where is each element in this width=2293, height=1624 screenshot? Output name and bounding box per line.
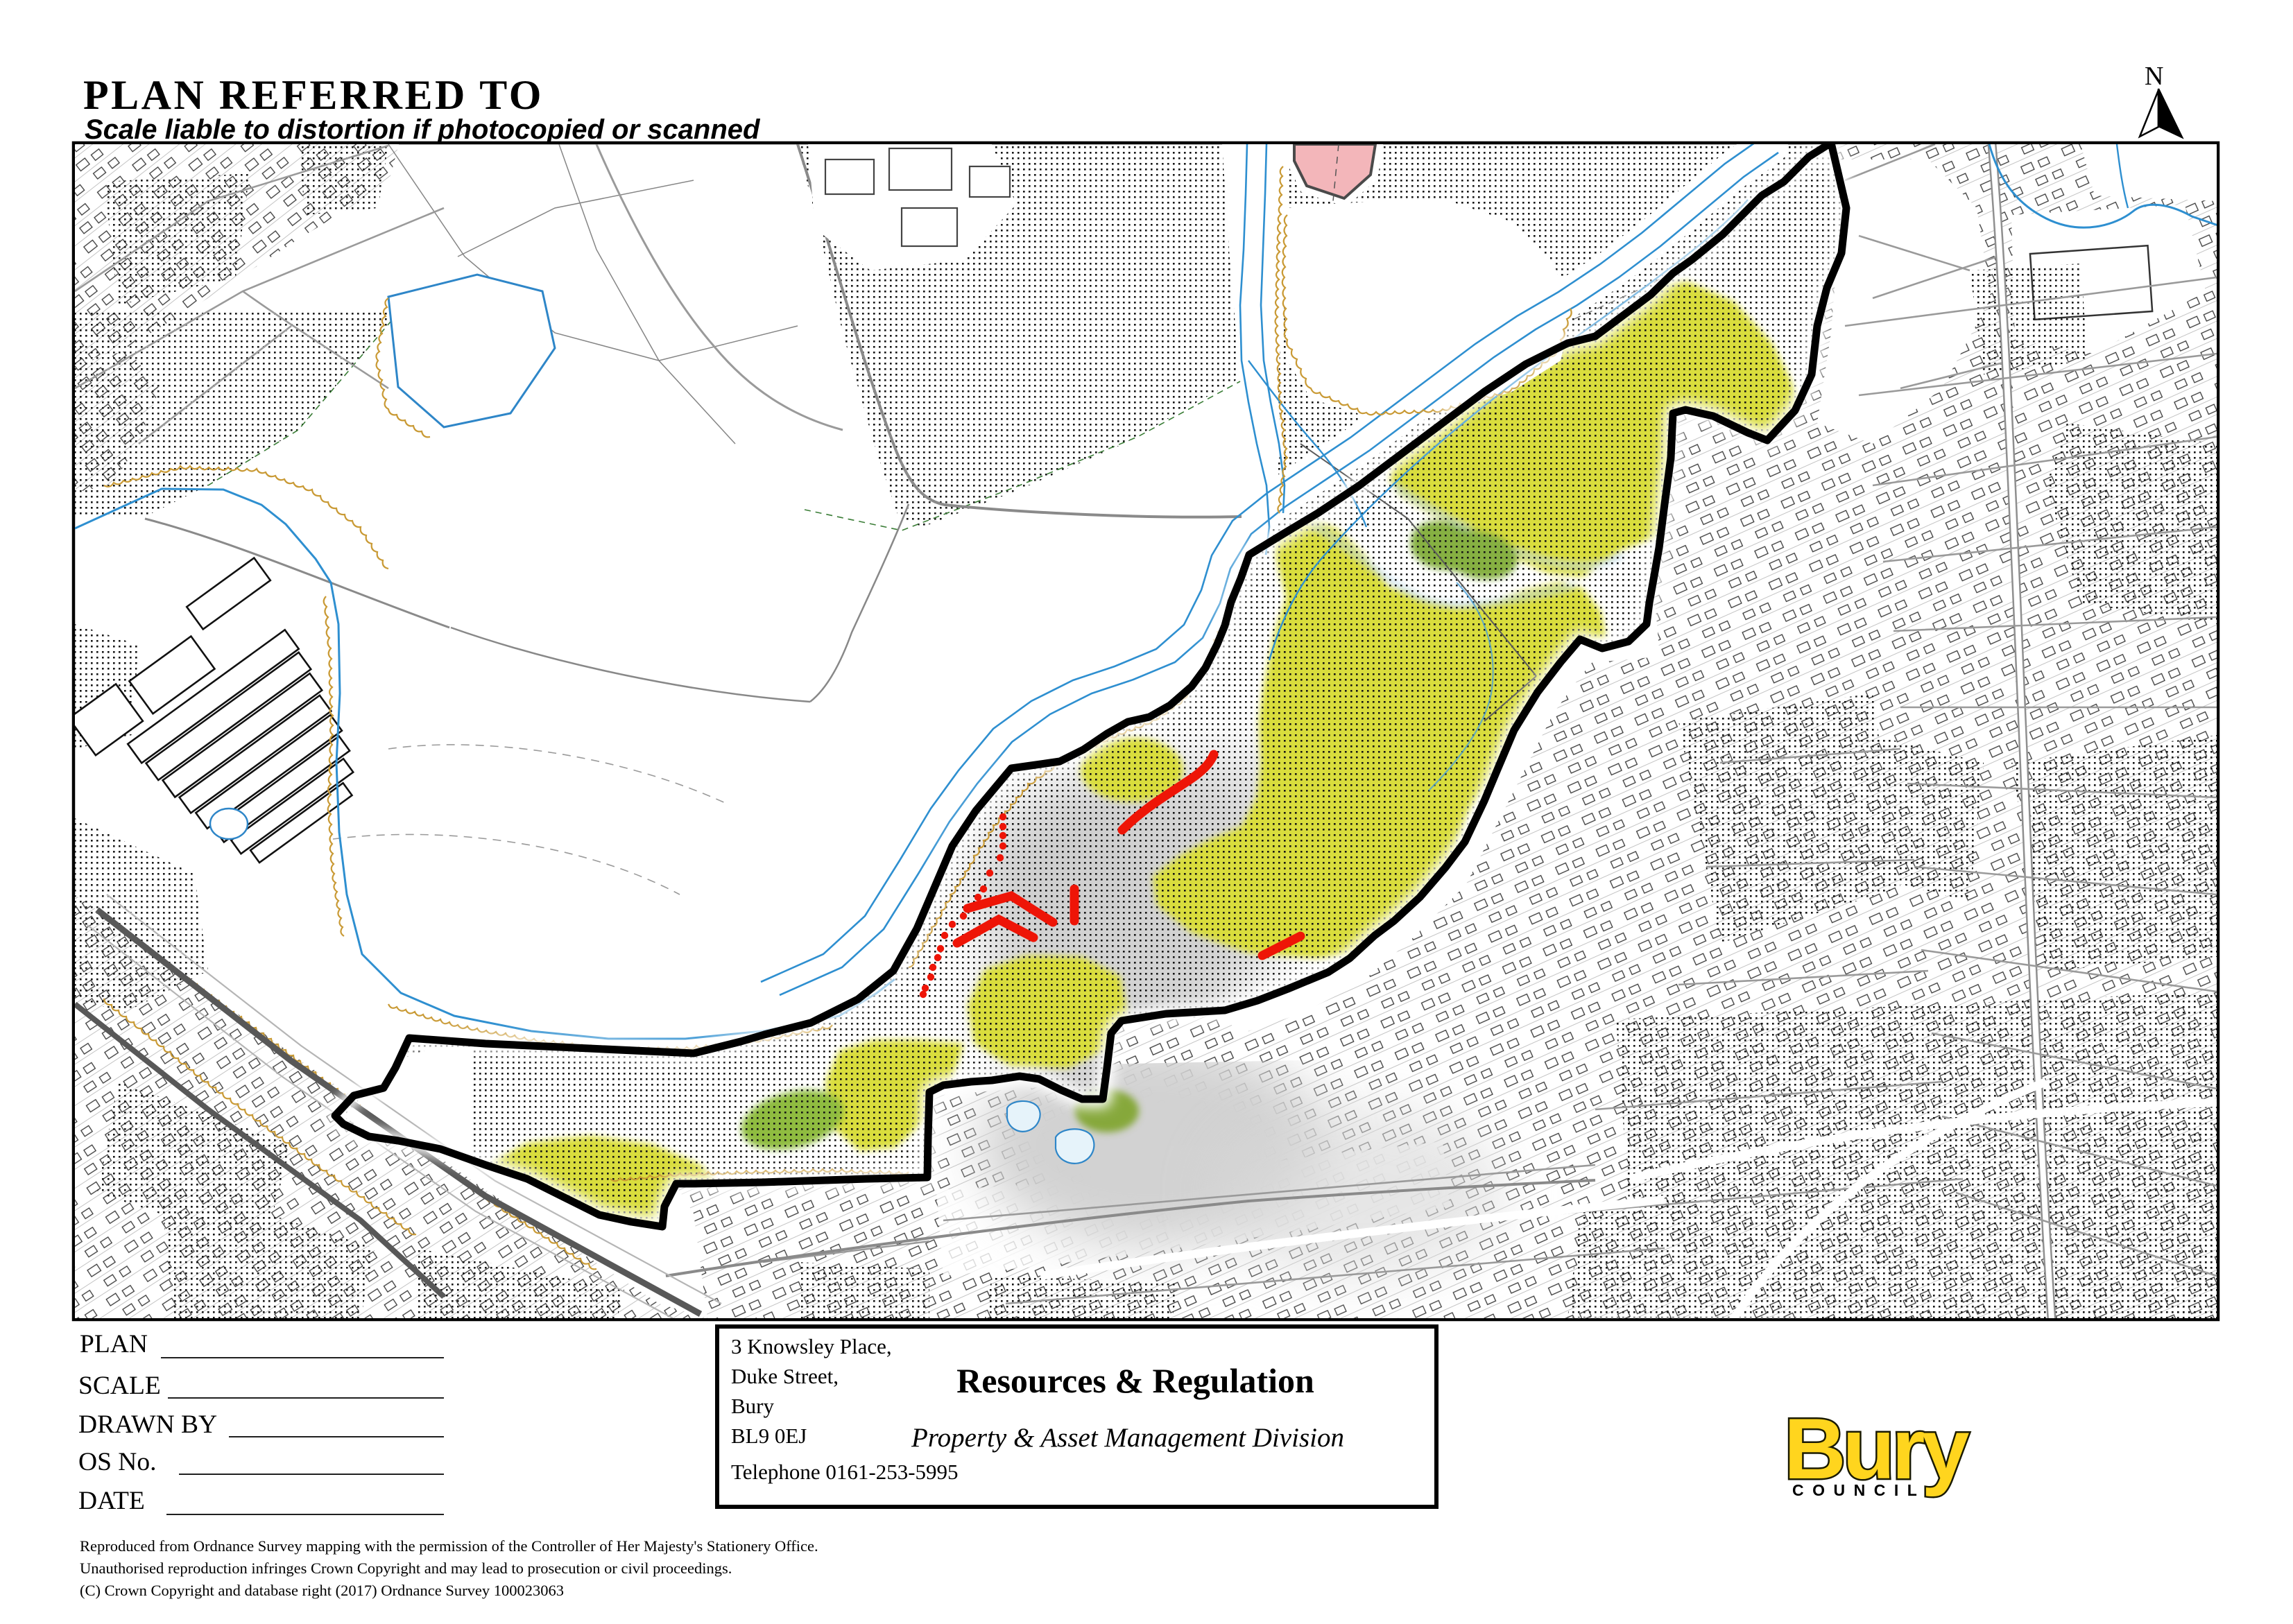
svg-text:3 Knowsley Place,: 3 Knowsley Place, <box>731 1334 892 1358</box>
svg-text:Unauthorised reproduction infr: Unauthorised reproduction infringes Crow… <box>80 1560 732 1577</box>
svg-text:Duke Street,: Duke Street, <box>731 1364 839 1388</box>
svg-text:DRAWN BY: DRAWN BY <box>78 1410 217 1439</box>
svg-text:PLAN REFERRED TO: PLAN REFERRED TO <box>83 72 544 118</box>
svg-text:PLAN: PLAN <box>80 1330 148 1358</box>
svg-text:Bury: Bury <box>731 1394 775 1418</box>
svg-text:BL9 0EJ: BL9 0EJ <box>731 1424 807 1448</box>
svg-text:OS No.: OS No. <box>78 1448 157 1476</box>
svg-text:Resources & Regulation: Resources & Regulation <box>956 1361 1314 1400</box>
svg-text:Property & Asset Management Di: Property & Asset Management Division <box>911 1423 1344 1453</box>
svg-text:(C) Crown Copyright and databa: (C) Crown Copyright and database right (… <box>80 1582 564 1599</box>
svg-text:COUNCIL: COUNCIL <box>1792 1481 1925 1499</box>
svg-text:SCALE: SCALE <box>78 1372 161 1400</box>
svg-text:Telephone 0161-253-5995: Telephone 0161-253-5995 <box>731 1460 959 1484</box>
svg-text:DATE: DATE <box>78 1487 145 1515</box>
svg-text:N: N <box>2145 62 2163 91</box>
svg-text:Scale liable to distortion if: Scale liable to distortion if photocopie… <box>85 114 761 145</box>
svg-text:Reproduced from Ordnance Surve: Reproduced from Ordnance Survey mapping … <box>80 1537 818 1555</box>
